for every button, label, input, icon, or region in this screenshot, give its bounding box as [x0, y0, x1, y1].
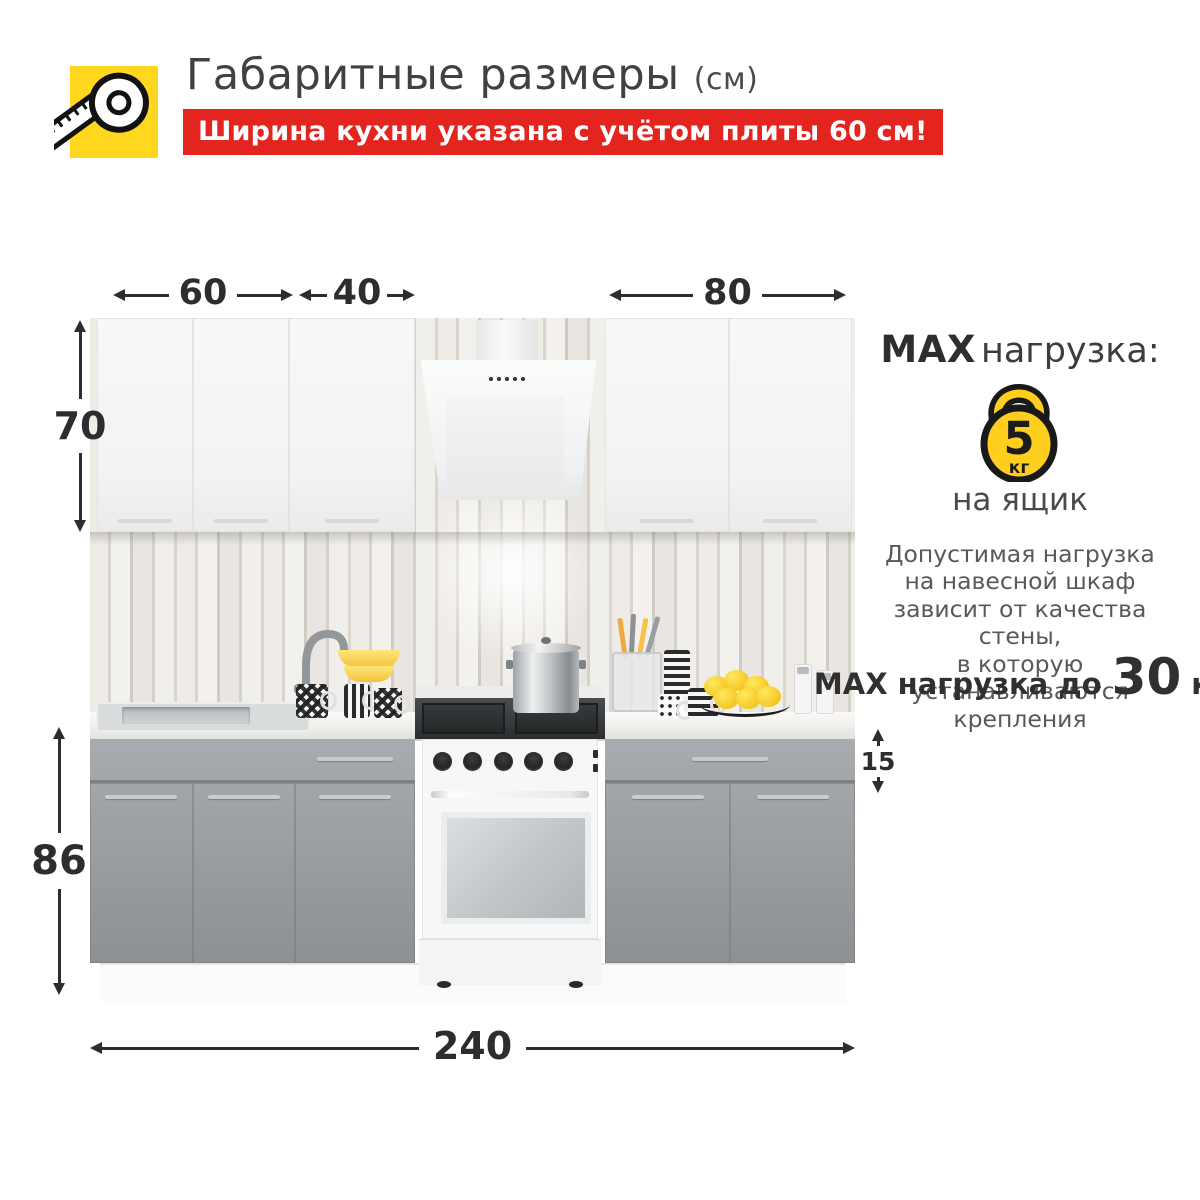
cabinet-door	[97, 318, 193, 532]
dimension-label: 70	[54, 399, 107, 453]
wire-basket	[700, 692, 790, 717]
dimension-total-width-240: 240	[90, 1028, 855, 1068]
patterned-mug	[296, 684, 328, 718]
base-cabinet-40	[295, 739, 415, 963]
load-note-line: зависит от качества стены,	[850, 596, 1190, 651]
door-handle	[214, 519, 268, 523]
hood-glass-panel	[446, 396, 564, 484]
cabinet-door	[605, 318, 729, 532]
dotted-cup	[658, 694, 684, 718]
load-note-line: на навесной шкаф	[850, 568, 1190, 595]
stove-foot	[437, 981, 451, 988]
door-handle	[105, 795, 177, 799]
upper-cabinet-80	[605, 318, 852, 532]
kitchen-dimensions-infographic: Габаритные размеры (см) Ширина кухни ука…	[0, 0, 1200, 1200]
oven-handle	[431, 791, 589, 798]
dimension-label: 86	[31, 833, 87, 889]
base-cabinet-sink-60	[90, 739, 295, 963]
base-cabinet-80	[605, 739, 855, 963]
door-handle	[757, 795, 829, 799]
striped-mug	[344, 684, 370, 718]
kettlebell-unit: кг	[974, 460, 1064, 477]
warning-banner: Ширина кухни указана с учётом плиты 60 с…	[183, 109, 943, 155]
max-load-footer: MAX нагрузка до 30 кг	[850, 648, 1190, 706]
cooking-pot	[513, 650, 579, 713]
dimension-lower-height-86: 86	[35, 727, 83, 995]
door-handle	[118, 519, 172, 523]
footer-prefix: MAX нагрузка до	[814, 667, 1102, 701]
oven-window	[441, 812, 591, 924]
cabinet-door	[289, 318, 415, 532]
igniter-button	[593, 764, 598, 772]
hood-chimney	[476, 320, 538, 362]
dimension-label: 40	[327, 276, 388, 311]
cabinet-door	[730, 783, 855, 963]
door-handle	[632, 795, 704, 799]
upper-cabinet-60	[97, 318, 289, 532]
drawer-handle	[692, 757, 768, 761]
burner-grate	[422, 703, 505, 734]
dimension-label: 80	[693, 276, 762, 311]
door-handle	[208, 795, 280, 799]
door-handle	[763, 519, 817, 523]
cabinet-door	[729, 318, 853, 532]
patterned-mug	[374, 688, 402, 718]
hood-buttons	[489, 377, 525, 381]
door-handle	[640, 519, 694, 523]
stove-knobs	[433, 752, 573, 771]
load-note-line: крепления	[850, 706, 1190, 733]
door-handle	[325, 519, 379, 523]
salt-shaker	[794, 664, 812, 714]
max-load-title-rest: нагрузка:	[981, 331, 1160, 371]
sink-front-panel	[90, 739, 295, 783]
page-title-text: Габаритные размеры	[186, 50, 680, 100]
door-handle	[319, 795, 391, 799]
kettlebell-icon: 5 кг	[974, 380, 1064, 482]
footer-unit: кг	[1191, 667, 1200, 701]
utensil-holder	[612, 652, 662, 712]
igniter-button	[593, 750, 598, 758]
dimension-upper-height-70: 70	[56, 320, 104, 532]
cabinet-door	[193, 318, 289, 532]
upper-cabinet-40	[289, 318, 415, 532]
max-load-title: MAX нагрузка:	[858, 328, 1182, 371]
dimension-label: 15	[861, 746, 896, 777]
drawer-front	[605, 739, 855, 783]
cabinet-door	[193, 783, 296, 963]
per-drawer-caption: на ящик	[858, 482, 1182, 518]
dimension-upper-80: 80	[609, 275, 846, 315]
dimension-label: 240	[419, 1027, 526, 1065]
striped-tin	[664, 650, 690, 696]
sink-basin	[122, 707, 250, 724]
tape-measure-icon	[54, 56, 164, 166]
page-title-unit-text: (см)	[694, 62, 759, 97]
footer-value: 30	[1112, 648, 1182, 706]
max-load-title-max: MAX	[880, 328, 975, 371]
cabinet-door	[90, 783, 193, 963]
kettlebell-value: 5	[974, 416, 1064, 461]
dimension-drawer-height-15: 15	[856, 729, 900, 793]
page-title: Габаритные размеры (см)	[186, 50, 758, 100]
dimension-upper-60: 60	[113, 275, 293, 315]
gas-range	[415, 686, 605, 990]
cabinet-shadow	[90, 532, 855, 545]
dimension-label: 60	[169, 276, 238, 311]
drawer-front	[295, 739, 415, 783]
cabinet-door	[295, 783, 415, 963]
drawer-handle	[317, 757, 393, 761]
load-note-line: Допустимая нагрузка	[850, 541, 1190, 568]
dimension-upper-40: 40	[299, 275, 415, 315]
cabinet-door	[605, 783, 730, 963]
stove-base	[419, 939, 601, 985]
stove-foot	[569, 981, 583, 988]
